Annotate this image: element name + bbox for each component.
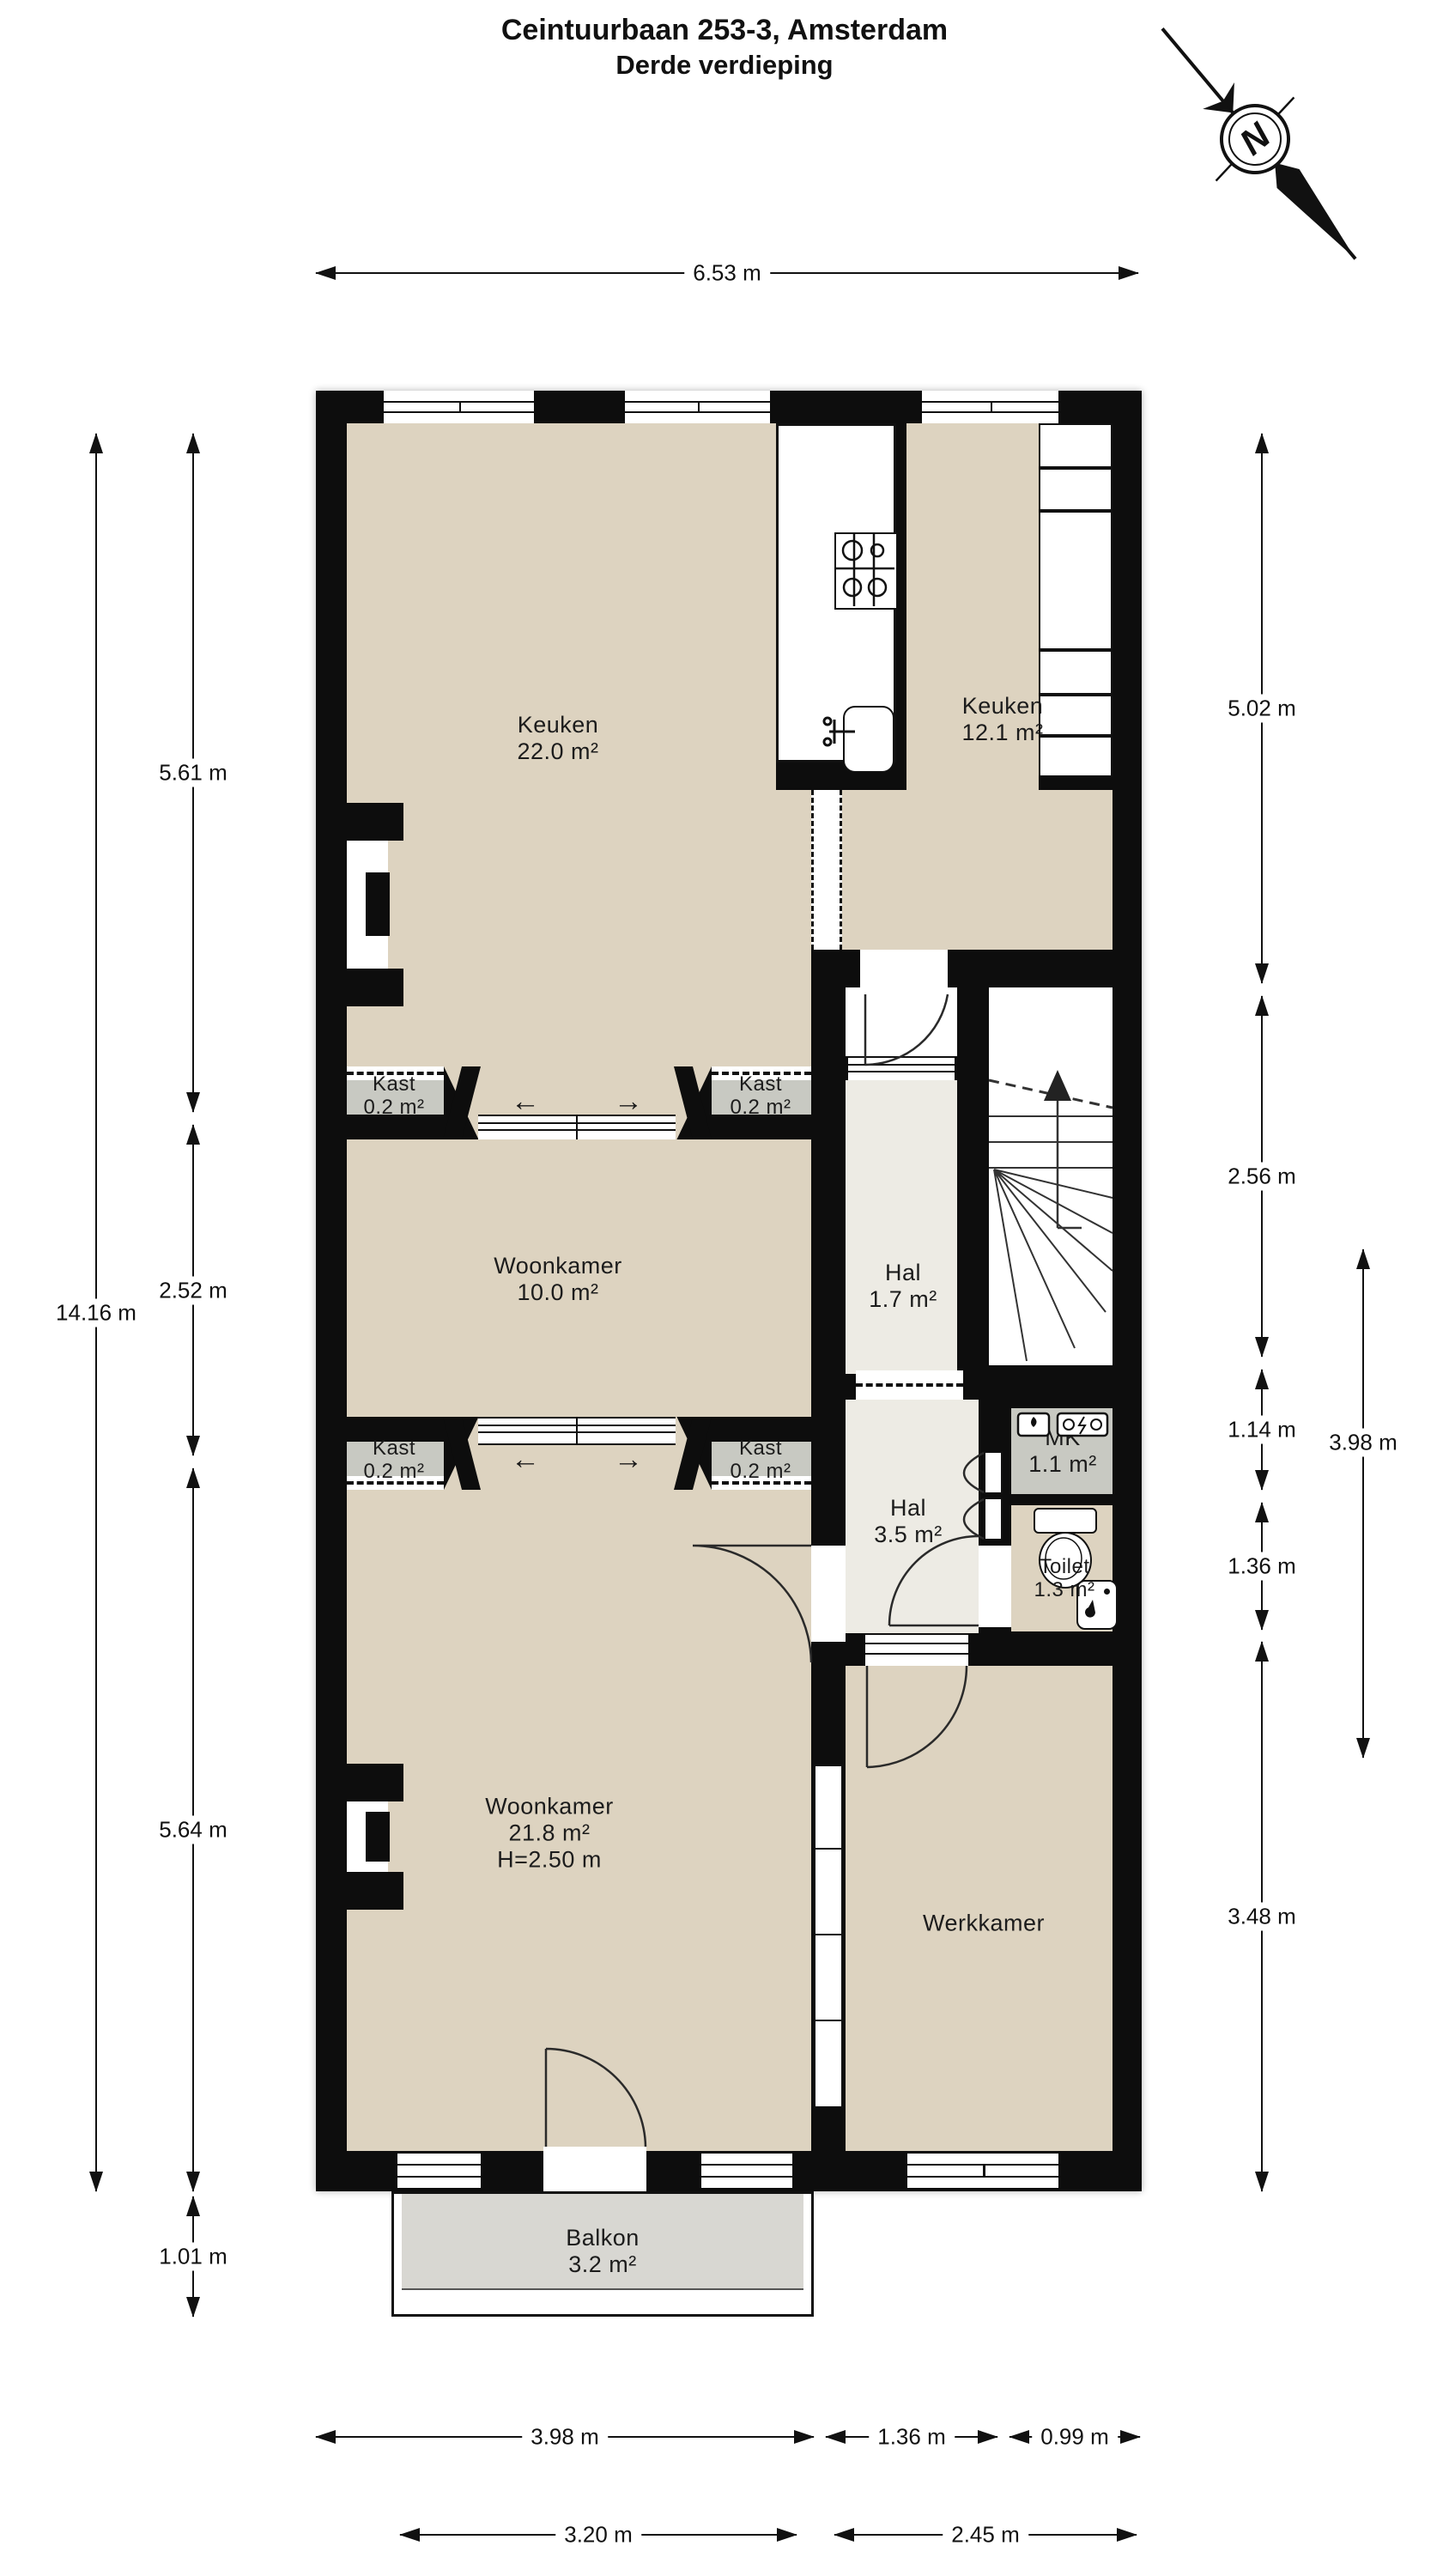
sink-icon <box>843 706 894 773</box>
room-name: Kast <box>730 1437 791 1460</box>
room-area: 3.2 m² <box>566 2251 640 2278</box>
basin-tap-icon <box>1104 1589 1110 1595</box>
label-mk: MK 1.1 m² <box>1028 1425 1097 1478</box>
room-name: Balkon <box>566 2225 640 2251</box>
rail-line <box>865 1653 968 1655</box>
dim-line <box>1362 1249 1365 1758</box>
dim-arrow <box>978 2430 998 2444</box>
label-woonkamer-218: Woonkamer 21.8 m² H=2.50 m <box>485 1794 614 1874</box>
dim-left-total: 14.16 m <box>72 434 120 2191</box>
partition-tick <box>815 1934 841 1935</box>
room-area: 22.0 m² <box>517 738 598 765</box>
dim-bottom2-1: 3.20 m <box>400 2523 797 2547</box>
dim-bottom1-3: 0.99 m <box>1009 2425 1140 2449</box>
dim-arrow <box>1009 2430 1029 2444</box>
dim-arrow <box>1255 1337 1269 1358</box>
hal-opening <box>856 1370 963 1400</box>
slide-arrow-right-icon: → <box>614 1085 643 1119</box>
cabinet-box <box>1039 650 1113 695</box>
sliding-door-row2 <box>478 1417 676 1445</box>
dim-bottom1-1: 3.98 m <box>316 2425 814 2449</box>
room-area: 12.1 m² <box>961 720 1043 746</box>
label-kast-sw: Kast 0.2 m² <box>363 1437 424 1483</box>
dim-label: 6.53 m <box>684 259 770 288</box>
chimney-tooth <box>366 1812 390 1862</box>
room-area: 10.0 m² <box>494 1279 622 1306</box>
dim-arrow <box>1255 1470 1269 1491</box>
dim-arrow <box>186 1436 200 1456</box>
dim-label: 3.98 m <box>522 2423 608 2451</box>
toilet-door-opening <box>979 1546 1011 1627</box>
dim-label: 3.98 m <box>1320 1428 1406 1456</box>
dim-right-seg-2: 2.56 m <box>1238 996 1286 1357</box>
dim-arrow <box>1117 2528 1137 2542</box>
window-top-2 <box>625 391 770 423</box>
rail-line <box>848 1064 955 1066</box>
page-title: Ceintuurbaan 253-3, Amsterdam <box>0 14 1449 47</box>
entry-vestibule <box>846 987 957 1056</box>
dim-label: 1.01 m <box>150 2243 236 2271</box>
label-balkon: Balkon 3.2 m² <box>566 2225 640 2278</box>
room-area: 0.2 m² <box>730 1096 791 1119</box>
toilet-cistern-icon <box>1034 1508 1097 1534</box>
room-area: 1.3 m² <box>1034 1578 1094 1601</box>
chimney-tab <box>347 969 403 1006</box>
room-name: Keuken <box>961 693 1043 720</box>
room-area: 1.7 m² <box>869 1286 937 1313</box>
room-area: 21.8 m² <box>485 1820 614 1847</box>
kitchen-cabinets <box>1039 423 1113 777</box>
dim-arrow <box>1255 995 1269 1016</box>
slide-arrow-left-icon: ← <box>511 1085 540 1119</box>
dim-arrow <box>315 2430 336 2444</box>
window-divider <box>459 401 462 413</box>
chimney-tab <box>347 1764 403 1801</box>
room-name: Woonkamer <box>494 1253 622 1279</box>
dim-arrow <box>89 433 103 453</box>
room-name: Kast <box>363 1437 424 1460</box>
kitchen-passage-opening <box>811 790 842 950</box>
room-keuken-12-low <box>842 790 1113 950</box>
room-hal-17 <box>846 1080 957 1374</box>
dim-arrow <box>186 2297 200 2318</box>
dim-arrow <box>186 1092 200 1113</box>
chimney-tab <box>347 1872 403 1910</box>
window-divider <box>698 401 700 413</box>
dim-label: 2.56 m <box>1219 1163 1305 1191</box>
dim-right-seg-1: 5.02 m <box>1238 434 1286 983</box>
mk-door-leaf <box>984 1451 1003 1494</box>
stove-icon <box>834 532 898 610</box>
label-toilet: Toilet 1.3 m² <box>1034 1555 1094 1601</box>
label-keuken-22: Keuken 22.0 m² <box>517 712 598 765</box>
room-area: 0.2 m² <box>363 1096 424 1119</box>
cabinet-box <box>1039 695 1113 736</box>
label-kast-se: Kast 0.2 m² <box>730 1437 791 1483</box>
room-height: H=2.50 m <box>485 1847 614 1874</box>
passage-dash-left <box>811 790 814 950</box>
dim-arrow <box>186 433 200 453</box>
room-name: Hal <box>874 1495 943 1522</box>
dim-arrow <box>1255 2172 1269 2192</box>
rail-seam <box>576 1116 578 1141</box>
dim-left-seg-3: 5.64 m <box>169 1468 217 2191</box>
balcony-door-opening <box>543 2147 646 2193</box>
dim-left-seg-4: 1.01 m <box>169 2196 217 2317</box>
dim-arrow <box>315 266 336 280</box>
room-name: Kast <box>730 1072 791 1096</box>
chimney-tooth <box>366 872 390 936</box>
dim-label: 2.45 m <box>943 2521 1028 2549</box>
window-divider <box>983 2164 985 2177</box>
room-area: 0.2 m² <box>730 1460 791 1483</box>
label-hal-17: Hal 1.7 m² <box>869 1260 937 1313</box>
room-name: Hal <box>869 1260 937 1286</box>
room-name: MK <box>1028 1425 1097 1451</box>
dim-arrow <box>777 2528 797 2542</box>
chimney-tab <box>347 803 403 841</box>
window-glass <box>397 2164 481 2177</box>
room-area: 0.2 m² <box>363 1460 424 1483</box>
dim-label: 0.99 m <box>1032 2423 1118 2451</box>
dim-arrow <box>1356 1249 1370 1269</box>
dim-right-seg-5: 3.48 m <box>1238 1642 1286 2191</box>
cabinet-box <box>1039 736 1113 777</box>
window-bottom-1 <box>397 2154 481 2188</box>
dim-arrow <box>186 1467 200 1488</box>
dim-label: 14.16 m <box>47 1298 145 1327</box>
label-werkkamer: Werkkamer <box>923 1911 1045 1937</box>
label-kast-ne: Kast 0.2 m² <box>730 1072 791 1119</box>
dim-right-seg-3: 1.14 m <box>1238 1370 1286 1490</box>
dim-arrow <box>1356 1738 1370 1759</box>
dim-bottom2-2: 2.45 m <box>834 2523 1137 2547</box>
room-area: 3.5 m² <box>874 1522 943 1548</box>
stairwell <box>989 987 1113 1365</box>
cabinet-box-fridge <box>1039 511 1113 650</box>
dim-arrow <box>399 2528 420 2542</box>
slide-arrow-left-icon: ← <box>511 1443 540 1477</box>
dim-label: 1.36 m <box>869 2423 955 2451</box>
window-glass <box>701 2164 792 2177</box>
window-bottom-2 <box>701 2154 792 2188</box>
dim-right-outer: 3.98 m <box>1339 1249 1387 1758</box>
dim-label: 3.20 m <box>555 2521 641 2549</box>
room-name: Keuken <box>517 712 598 738</box>
dim-top-width: 6.53 m <box>316 261 1138 285</box>
dim-arrow <box>1255 1641 1269 1662</box>
dim-arrow <box>834 2528 854 2542</box>
opening-dash <box>856 1383 963 1387</box>
dim-label: 1.36 m <box>1219 1552 1305 1581</box>
partition-tick <box>815 2020 841 2021</box>
dim-arrow <box>186 2196 200 2216</box>
label-woonkamer-10: Woonkamer 10.0 m² <box>494 1253 622 1306</box>
dim-label: 1.14 m <box>1219 1416 1305 1444</box>
dim-right-seg-4: 1.36 m <box>1238 1503 1286 1630</box>
dim-arrow <box>825 2430 846 2444</box>
rail-line <box>848 1071 955 1072</box>
rail-line <box>865 1643 968 1644</box>
cabinet-box <box>1039 423 1113 468</box>
floorplan-page: Ceintuurbaan 253-3, Amsterdam Derde verd… <box>0 0 1449 2576</box>
dim-arrow <box>1255 433 1269 453</box>
dim-arrow <box>794 2430 815 2444</box>
threshold-werkkamer <box>865 1633 968 1669</box>
mk-door-leaf <box>984 1498 1003 1540</box>
dim-arrow <box>89 2172 103 2192</box>
room-name: Toilet <box>1034 1555 1094 1578</box>
woonkamer-door-opening <box>811 1546 846 1642</box>
window-bottom-3 <box>907 2154 1058 2188</box>
dim-bottom1-2: 1.36 m <box>826 2425 997 2449</box>
dim-arrow <box>1255 1610 1269 1631</box>
window-top-3 <box>922 391 1058 423</box>
dim-arrow <box>186 2172 200 2192</box>
room-name: Woonkamer <box>485 1794 614 1820</box>
slide-arrow-right-icon: → <box>614 1443 643 1477</box>
cabinet-box <box>1039 468 1113 511</box>
dim-arrow <box>1120 2430 1141 2444</box>
room-keuken-22-ext <box>776 790 811 1066</box>
dim-arrow <box>1255 963 1269 984</box>
glass-partition <box>814 1765 843 2108</box>
dim-left-seg-1: 5.61 m <box>169 434 217 1112</box>
compass-north-label: N <box>1232 114 1279 163</box>
dim-label: 5.64 m <box>150 1816 236 1844</box>
dim-arrow <box>1255 1502 1269 1522</box>
room-area: 1.1 m² <box>1028 1451 1097 1478</box>
label-keuken-12: Keuken 12.1 m² <box>961 693 1043 746</box>
partition-tick <box>815 1848 841 1850</box>
dim-arrow <box>186 1124 200 1145</box>
room-name: Kast <box>363 1072 424 1096</box>
room-werkkamer <box>846 1666 1113 2151</box>
window-divider <box>991 401 993 413</box>
label-hal-35: Hal 3.5 m² <box>874 1495 943 1548</box>
dim-arrow <box>1119 266 1139 280</box>
dim-label: 5.61 m <box>150 759 236 787</box>
window-top-1 <box>384 391 534 423</box>
label-kast-nw: Kast 0.2 m² <box>363 1072 424 1119</box>
dim-left-seg-2: 2.52 m <box>169 1125 217 1455</box>
rail-seam <box>576 1419 578 1443</box>
entry-door-opening <box>860 950 948 987</box>
room-name: Werkkamer <box>923 1911 1045 1937</box>
dim-label: 5.02 m <box>1219 695 1305 723</box>
dim-label: 2.52 m <box>150 1276 236 1304</box>
dim-label: 3.48 m <box>1219 1903 1305 1931</box>
dim-arrow <box>1255 1369 1269 1389</box>
page-subtitle: Derde verdieping <box>0 50 1449 81</box>
